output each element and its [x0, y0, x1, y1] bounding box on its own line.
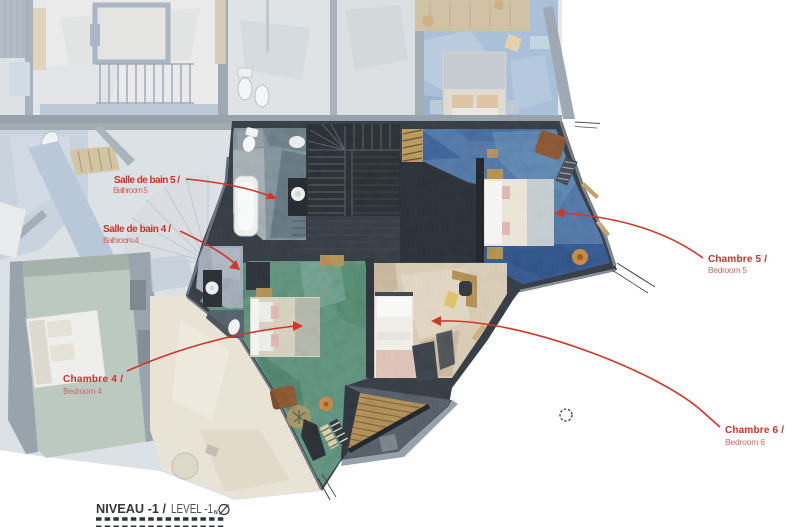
svg-text:Bedroom 4: Bedroom 4: [63, 386, 102, 396]
svg-text:Bathroom 4: Bathroom 4: [103, 235, 139, 245]
svg-text:Bedroom 5: Bedroom 5: [708, 265, 747, 275]
svg-text:Bathroom 5: Bathroom 5: [113, 185, 148, 195]
svg-text:Salle de bain 4 /: Salle de bain 4 /: [103, 224, 171, 235]
svg-text:Chambre 4 /: Chambre 4 /: [63, 374, 123, 385]
svg-text:Bedroom 6: Bedroom 6: [725, 437, 765, 447]
svg-text:LEVEL -1: LEVEL -1: [171, 502, 213, 516]
svg-text:N: N: [214, 510, 218, 516]
svg-text:Chambre 6 /: Chambre 6 /: [725, 425, 784, 436]
svg-text:Chambre 5 /: Chambre 5 /: [708, 254, 767, 265]
svg-text:NIVEAU -1 /: NIVEAU -1 /: [96, 502, 167, 516]
